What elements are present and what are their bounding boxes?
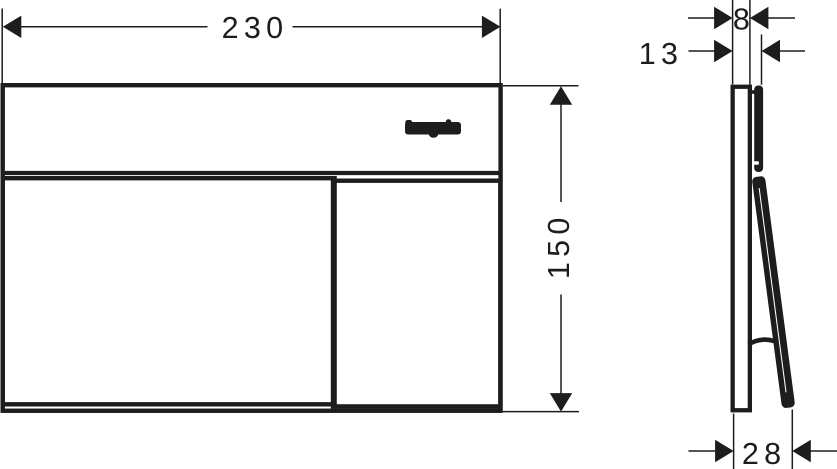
svg-text:150: 150 (542, 212, 576, 279)
svg-text:8: 8 (733, 3, 755, 37)
svg-text:28: 28 (742, 437, 787, 469)
svg-text:230: 230 (222, 11, 289, 45)
svg-text:13: 13 (639, 37, 684, 71)
